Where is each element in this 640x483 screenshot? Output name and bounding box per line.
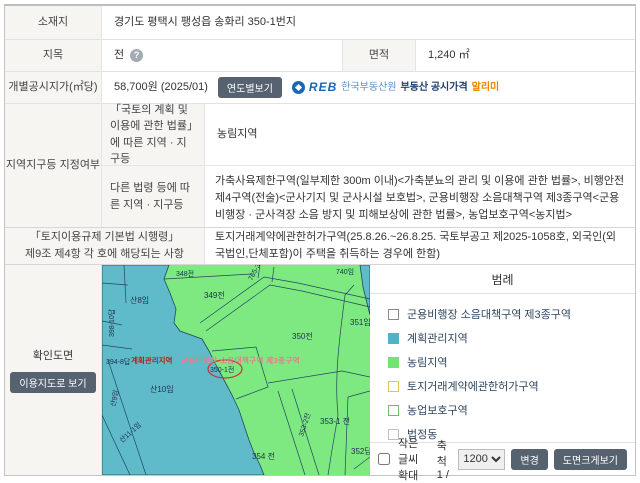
cadastral-map[interactable]: 348전 349전 740임 765-3 산8임 398-10답 394-8답 …: [102, 265, 370, 475]
zoning-national-law-row: 「국토의 계획 및 이용에 관한 법률」에 따른 지역 · 지구등 농림지역: [102, 104, 635, 165]
enlarge-small-text-checkbox[interactable]: [378, 453, 390, 465]
parcel-label: 394-8답: [106, 357, 131, 366]
legend-swatch: [388, 381, 399, 392]
regulation-value: 토지거래계약에관한허가구역(25.8.26.~26.8.25. 국토부공고 제2…: [205, 228, 635, 264]
regulation-label-line2: 제9조 제4항 각 호에 해당되는 사항: [25, 247, 184, 263]
zoning-other-laws-row: 다른 법령 등에 따른 지역 · 지구등 가축사육제한구역(일부제한 300m …: [102, 165, 635, 227]
enlarge-small-text-label: 작은글씨확대: [398, 435, 425, 483]
parcel-label: 349전: [204, 290, 225, 300]
view-usage-map-button[interactable]: 이용지도로 보기: [10, 372, 95, 393]
drawing-label-cell: 확인도면 이용지도로 보기: [5, 265, 102, 475]
legend-item-label: 계획관리지역: [407, 330, 468, 346]
parcel-label: 350전: [292, 331, 313, 341]
enlarge-drawing-button[interactable]: 도면크게보기: [554, 449, 627, 470]
row-price: 개별공시지가(㎡당) 58,700원 (2025/01) 연도별보기 REB 한…: [5, 71, 635, 103]
help-icon[interactable]: ?: [130, 49, 143, 62]
legend-item-label: 군용비행장 소음대책구역 제3종구역: [407, 306, 571, 322]
area-label: 면적: [342, 40, 416, 71]
drawing-label: 확인도면: [33, 347, 73, 363]
legend-swatch: [388, 309, 399, 320]
parcel-label: 353-1 전: [320, 416, 350, 426]
legend-list: 군용비행장 소음대책구역 제3종구역 계획관리지역 농림지역 토지거래계약에관한…: [370, 294, 635, 442]
national-law-value: 농림지역: [205, 104, 635, 165]
legend-item-label: 농업보호구역: [407, 402, 468, 418]
reb-service-text: 부동산 공시가격: [400, 80, 467, 96]
legend-item: 군용비행장 소음대책구역 제3종구역: [388, 306, 629, 322]
parcel-label: 352답: [351, 446, 370, 456]
category-value-text: 전: [114, 47, 124, 64]
legend-item: 토지거래계약에관한허가구역: [388, 378, 629, 394]
zone-overlay-label: 계획관리지역: [131, 355, 172, 365]
legend-swatch: [388, 405, 399, 416]
location-value: 경기도 평택시 팽성읍 송화리 350-1번지: [102, 6, 635, 39]
reb-logo-name: REB: [309, 78, 337, 97]
price-value: 58,700원 (2025/01): [114, 79, 208, 96]
row-regulation: 「토지이용규제 기본법 시행령」 제9조 제4항 각 호에 해당되는 사항 토지…: [5, 227, 635, 264]
reb-org-text: 한국부동산원: [341, 80, 396, 96]
row-zoning: 지역지구등 지정여부 「국토의 계획 및 이용에 관한 법률」에 따른 지역 ·…: [5, 103, 635, 227]
legend-item: 농림지역: [388, 354, 629, 370]
legend-title: 범례: [370, 265, 635, 294]
info-table: 소재지 경기도 평택시 팽성읍 송화리 350-1번지 지목 전 ? 면적 1,…: [4, 4, 636, 476]
scale-select[interactable]: 1200: [458, 449, 505, 470]
parcel-label: 398-10답: [107, 308, 116, 337]
legend-item: 계획관리지역: [388, 330, 629, 346]
reb-logo[interactable]: REB 한국부동산원 부동산 공시가격 알리미: [292, 78, 499, 97]
area-value: 1,240 ㎡: [416, 40, 635, 71]
regulation-label-line1: 「토지이용규제 기본법 시행령」: [30, 230, 180, 246]
price-label: 개별공시지가(㎡당): [5, 72, 102, 103]
parcel-label: 산10임: [150, 384, 174, 394]
legend-item: 농업보호구역: [388, 402, 629, 418]
parcel-label: 354 전: [252, 451, 275, 461]
scale-label: 축척 1 /: [437, 437, 453, 481]
other-laws-label: 다른 법령 등에 따른 지역 · 지구등: [102, 166, 205, 227]
parcel-label: 351임: [350, 318, 370, 327]
price-value-cell: 58,700원 (2025/01) 연도별보기 REB 한국부동산원 부동산 공…: [102, 72, 635, 103]
map-control-bar: 작은글씨확대 축척 1 / 1200 변경 도면크게보기: [370, 442, 635, 475]
parcel-label: 348전: [176, 269, 194, 278]
change-scale-button[interactable]: 변경: [511, 449, 547, 470]
cadastral-map-svg: 348전 349전 740임 765-3 산8임 398-10답 394-8답 …: [102, 265, 370, 475]
row-location: 소재지 경기도 평택시 팽성읍 송화리 350-1번지: [5, 6, 635, 39]
zone-overlay-label: 군용비행장 소음대책구역 제3종구역: [181, 355, 300, 365]
subject-parcel-label: 350-1전: [210, 365, 234, 374]
location-label: 소재지: [5, 6, 102, 39]
zoning-label: 지역지구등 지정여부: [5, 104, 102, 227]
row-category-area: 지목 전 ? 면적 1,240 ㎡: [5, 39, 635, 71]
legend-panel: 범례 군용비행장 소음대책구역 제3종구역 계획관리지역 농림지역: [370, 265, 635, 475]
national-law-label: 「국토의 계획 및 이용에 관한 법률」에 따른 지역 · 지구등: [102, 104, 205, 165]
legend-swatch: [388, 333, 399, 344]
regulation-label: 「토지이용규제 기본법 시행령」 제9조 제4항 각 호에 해당되는 사항: [5, 228, 205, 264]
parcel-label: 산8임: [130, 295, 149, 305]
reb-logo-icon: [292, 81, 305, 94]
reb-suffix-text: 알리미: [472, 80, 500, 96]
land-use-plan-page: 소재지 경기도 평택시 팽성읍 송화리 350-1번지 지목 전 ? 면적 1,…: [0, 0, 640, 480]
legend-item-label: 농림지역: [407, 354, 447, 370]
other-laws-value: 가축사육제한구역(일부제한 300m 이내)<가축분뇨의 관리 및 이용에 관한…: [205, 166, 635, 227]
parcel-label: 740임: [336, 268, 354, 276]
zoning-subtable: 「국토의 계획 및 이용에 관한 법률」에 따른 지역 · 지구등 농림지역 다…: [102, 104, 635, 227]
category-label: 지목: [5, 40, 102, 71]
category-value: 전 ?: [102, 40, 342, 71]
legend-item-label: 토지거래계약에관한허가구역: [407, 378, 539, 394]
legend-swatch: [388, 357, 399, 368]
row-drawing: 확인도면 이용지도로 보기: [5, 264, 635, 475]
yearly-view-button[interactable]: 연도별보기: [218, 77, 282, 98]
